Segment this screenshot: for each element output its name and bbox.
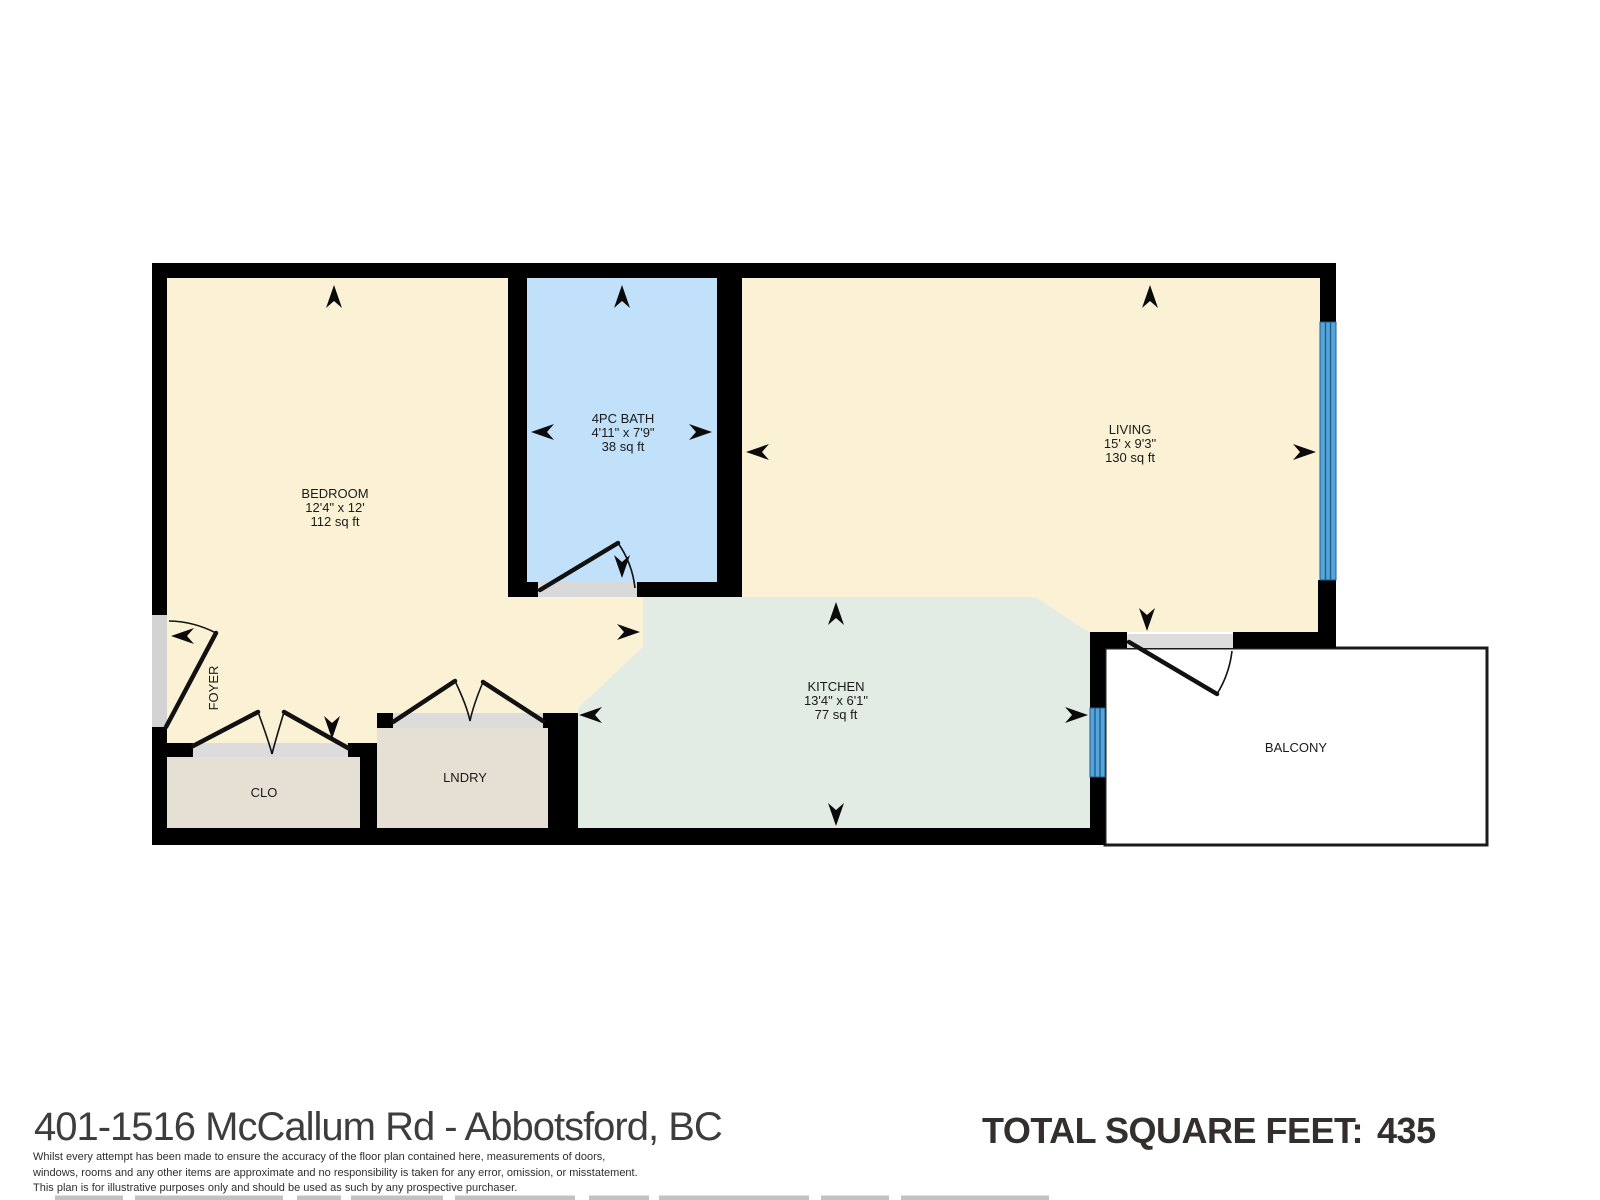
kitchen-area: 77 sq ft xyxy=(815,707,858,722)
living-name: LIVING xyxy=(1109,422,1152,437)
bedroom-label: BEDROOM 12'4" x 12' 112 sq ft xyxy=(301,486,368,529)
living-label: LIVING 15' x 9'3" 130 sq ft xyxy=(1104,422,1157,465)
page-title: 401-1516 McCallum Rd - Abbotsford, BC xyxy=(34,1105,722,1149)
bath-name: 4PC BATH xyxy=(592,411,655,426)
total-value: 435 xyxy=(1377,1110,1436,1151)
total-label: TOTAL SQUARE FEET: xyxy=(982,1110,1363,1151)
entry-door-threshold xyxy=(152,615,167,727)
floorplan-page: BEDROOM 12'4" x 12' 112 sq ft 4PC BATH 4… xyxy=(0,0,1600,1200)
bedroom-dims: 12'4" x 12' xyxy=(305,500,364,515)
living-area: 130 sq ft xyxy=(1105,450,1155,465)
disclaimer-line1: Whilst every attempt has been made to en… xyxy=(33,1151,605,1163)
foyer-label: FOYER xyxy=(206,666,221,711)
bedroom-area: 112 sq ft xyxy=(311,514,360,529)
total-square-feet: TOTAL SQUARE FEET:435 xyxy=(982,1110,1436,1151)
living-dims: 15' x 9'3" xyxy=(1104,436,1157,451)
laundry-label: LNDRY xyxy=(443,770,487,785)
closet-label: CLO xyxy=(251,785,278,800)
floorplan-canvas: BEDROOM 12'4" x 12' 112 sq ft 4PC BATH 4… xyxy=(0,0,1600,1200)
disclaimer-line3: This plan is for illustrative purposes o… xyxy=(33,1182,517,1194)
balcony-door-threshold xyxy=(1127,634,1233,648)
footer: 401-1516 McCallum Rd - Abbotsford, BC TO… xyxy=(32,1105,1436,1198)
bath-area: 38 sq ft xyxy=(602,439,645,454)
disclaimer-line2: windows, rooms and any other items are a… xyxy=(32,1167,638,1179)
kitchen-dims: 13'4" x 6'1" xyxy=(804,693,868,708)
bedroom-name: BEDROOM xyxy=(301,486,368,501)
balcony-label: BALCONY xyxy=(1265,740,1327,755)
living-window xyxy=(1320,322,1336,580)
kitchen-window xyxy=(1090,708,1105,777)
bath-dims: 4'11" x 7'9" xyxy=(591,425,654,440)
kitchen-name: KITCHEN xyxy=(807,679,864,694)
